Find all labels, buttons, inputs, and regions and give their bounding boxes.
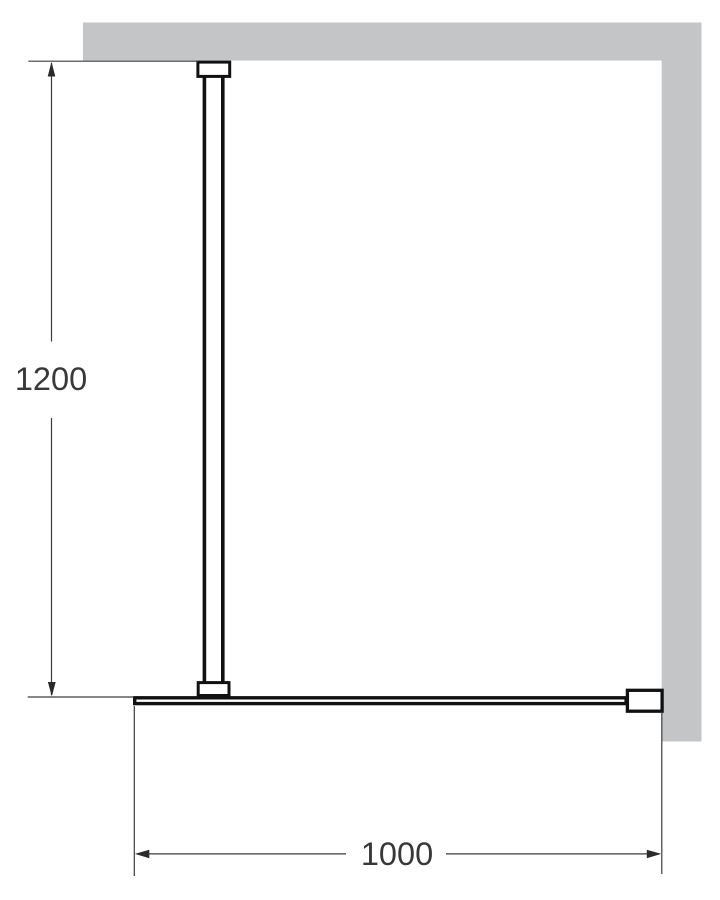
svg-text:1000: 1000: [361, 836, 433, 872]
svg-text:1200: 1200: [15, 361, 87, 397]
